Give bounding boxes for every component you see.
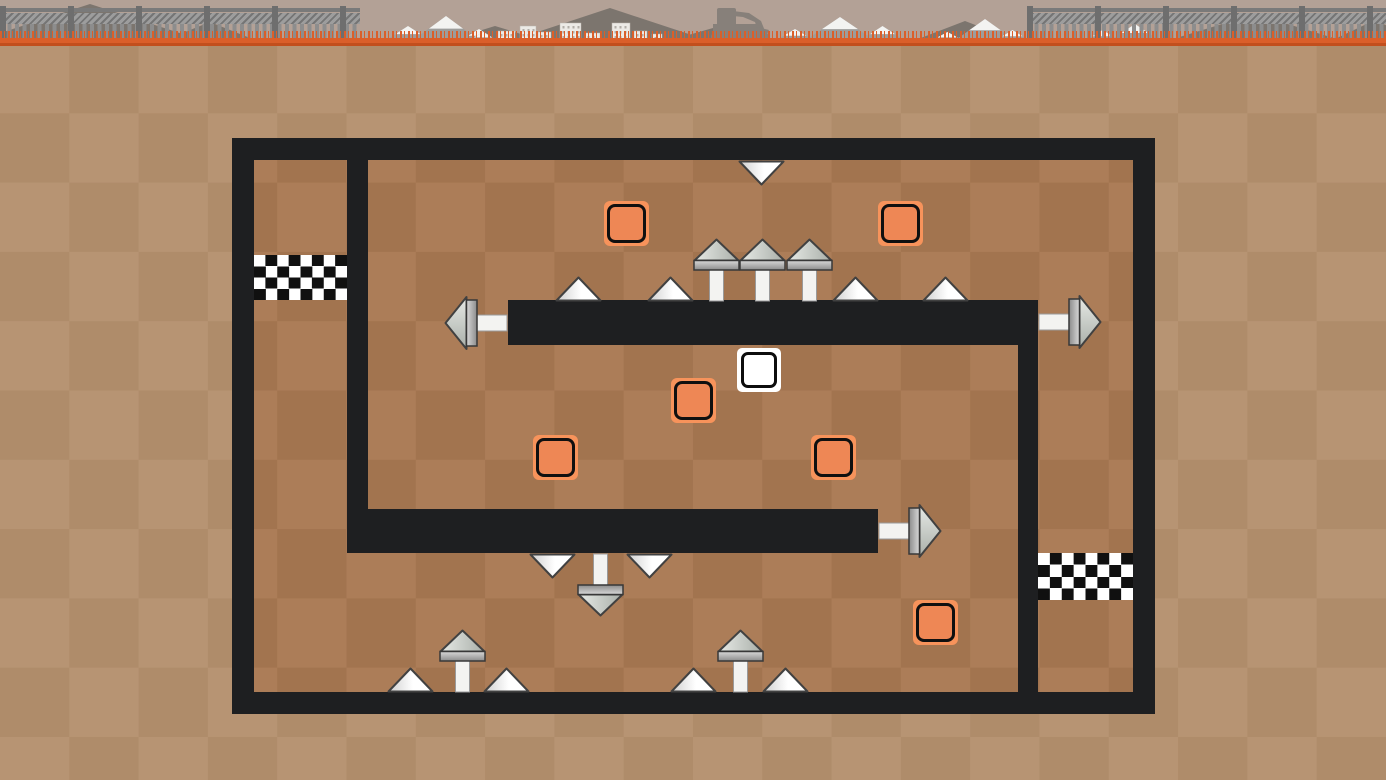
crate-block-face bbox=[674, 381, 713, 420]
crate-block bbox=[811, 435, 856, 480]
maze-wall bbox=[232, 138, 1155, 160]
spike-triangle bbox=[483, 667, 530, 693]
goal-checker-flag bbox=[1038, 553, 1133, 600]
spike-pin bbox=[693, 238, 740, 302]
crate-block bbox=[878, 201, 923, 246]
spike-triangle bbox=[529, 553, 576, 579]
maze-wall bbox=[1018, 300, 1038, 692]
crate-block bbox=[671, 378, 716, 423]
crate-block-face bbox=[814, 438, 853, 477]
maze-wall bbox=[1133, 138, 1155, 714]
maze-wall bbox=[232, 692, 1155, 714]
crate-block bbox=[913, 600, 958, 645]
maze-wall bbox=[347, 509, 878, 553]
spike-triangle bbox=[738, 160, 785, 186]
maze-wall bbox=[508, 300, 1038, 345]
spike-triangle bbox=[555, 276, 602, 302]
spike-pin bbox=[739, 238, 786, 302]
spike-pin bbox=[444, 295, 508, 351]
spike-triangle bbox=[387, 667, 434, 693]
goal-checker-flag bbox=[254, 255, 347, 300]
grass-shadow-strip bbox=[0, 43, 1386, 46]
spike-triangle bbox=[670, 667, 717, 693]
spike-pin bbox=[577, 553, 624, 617]
spike-pin bbox=[878, 503, 942, 559]
crate-block-face bbox=[607, 204, 646, 243]
spike-pin bbox=[439, 629, 486, 693]
spike-triangle bbox=[626, 553, 673, 579]
player-block[interactable] bbox=[737, 348, 781, 392]
spike-triangle bbox=[647, 276, 694, 302]
spike-triangle bbox=[762, 667, 809, 693]
player-block-face bbox=[741, 352, 777, 388]
spike-pin bbox=[786, 238, 833, 302]
maze-wall bbox=[347, 160, 368, 553]
crate-block bbox=[533, 435, 578, 480]
crate-block-face bbox=[881, 204, 920, 243]
crate-block-face bbox=[916, 603, 955, 642]
game-viewport[interactable] bbox=[0, 0, 1386, 780]
spike-triangle bbox=[832, 276, 879, 302]
crate-block bbox=[604, 201, 649, 246]
maze-wall bbox=[232, 138, 254, 714]
spike-pin bbox=[717, 629, 764, 693]
spike-pin bbox=[1038, 294, 1102, 350]
spike-triangle bbox=[922, 276, 969, 302]
crate-block-face bbox=[536, 438, 575, 477]
